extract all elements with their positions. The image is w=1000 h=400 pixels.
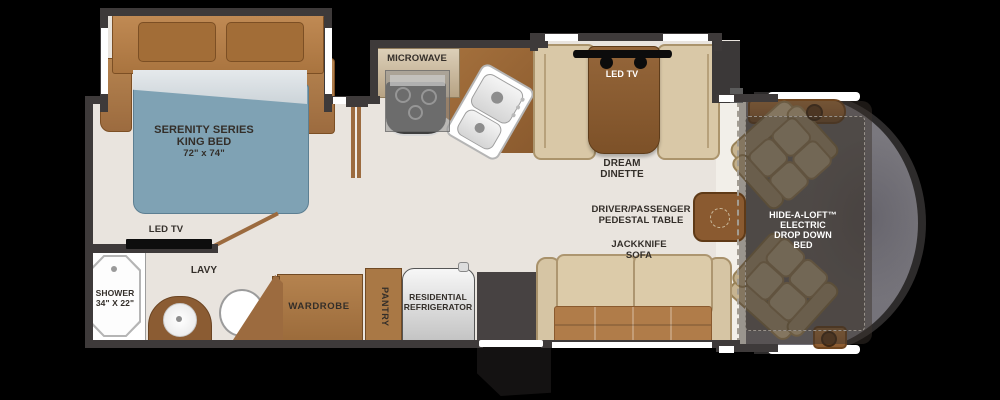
bench-crease xyxy=(544,54,546,148)
wall-dinette-slideout-right xyxy=(714,33,722,51)
dinette-tv-label: LED TV xyxy=(592,69,652,79)
pedestal-table-label: DRIVER/PASSENGER PEDESTAL TABLE xyxy=(571,205,711,226)
dinette-table xyxy=(588,46,660,154)
sofa-text-2: SOFA xyxy=(579,251,699,262)
loft-text-2: ELECTRIC xyxy=(741,220,865,230)
wall-bottom-left xyxy=(85,340,483,348)
sofa-label: JACKKNIFE SOFA xyxy=(579,240,699,261)
slide-front-dashed-line xyxy=(737,101,739,344)
microwave-label: MICROWAVE xyxy=(377,54,457,65)
bedroom-tv-label: LED TV xyxy=(133,225,199,236)
hide-a-loft-label: HIDE-A-LOFT™ ELECTRIC DROP DOWN BED xyxy=(741,210,865,250)
window-cab-bottom xyxy=(719,346,734,353)
dinette-text-2: DINETTE xyxy=(582,169,662,180)
shower-drain xyxy=(111,266,117,272)
dinette-bench-left xyxy=(533,44,596,160)
bed-dims-text: 72" x 74" xyxy=(124,149,284,160)
dinette-tv-arm xyxy=(573,50,672,58)
headboard-panel xyxy=(226,22,304,62)
shower-label: SHOWER 34" X 22" xyxy=(85,289,145,308)
pantry-label: PANTRY xyxy=(374,276,390,338)
refrigerator-text-2: REFRIGERATOR xyxy=(398,303,478,313)
loft-text-3: DROP DOWN xyxy=(741,230,865,240)
bed-series-text: SERENITY SERIES xyxy=(124,124,284,136)
headboard-panel xyxy=(138,22,216,62)
dinette-text-1: DREAM xyxy=(582,158,662,169)
window-cab-top xyxy=(719,95,734,102)
wall-left xyxy=(85,96,93,348)
loft-text-4: BED xyxy=(741,240,865,250)
bed-type-text: KING BED xyxy=(124,136,284,148)
dinette-bench-right xyxy=(657,44,720,160)
bedroom-tv xyxy=(126,239,212,249)
kitchen-door xyxy=(351,104,361,178)
window-bed-slideout-left xyxy=(101,28,108,94)
refrigerator-label: RESIDENTIAL REFRIGERATOR xyxy=(398,293,478,312)
refrigerator-cap xyxy=(458,262,469,272)
rv-floorplan: SERENITY SERIES KING BED 72" x 74" LED T… xyxy=(0,0,1000,400)
window-bedroom-top xyxy=(333,97,346,104)
wardrobe-label: WARDROBE xyxy=(279,302,359,313)
sofa-seat xyxy=(554,306,712,344)
pedestal-text-2: PEDESTAL TABLE xyxy=(571,216,711,227)
window-dinette-2 xyxy=(663,34,708,41)
wall-bed-slideout-top xyxy=(100,8,332,16)
dinette-tv-mount xyxy=(600,56,613,69)
loft-text-1: HIDE-A-LOFT™ xyxy=(741,210,865,220)
wall-kitchen-top xyxy=(370,40,548,48)
entry-steps xyxy=(477,342,551,396)
entry-threshold xyxy=(479,340,543,347)
pedestal-table-base xyxy=(710,208,730,228)
wall-kitchen-step xyxy=(370,40,378,104)
lavy-label: LAVY xyxy=(174,265,234,276)
shower-dims-text: 34" X 22" xyxy=(85,299,145,309)
dinette-tv-mount xyxy=(634,56,647,69)
wall-door-stub xyxy=(346,96,368,107)
window-sofa-rear xyxy=(552,342,712,348)
window-dinette-1 xyxy=(545,34,578,41)
window-bed-slideout-right xyxy=(325,28,332,94)
bed-label: SERENITY SERIES KING BED 72" x 74" xyxy=(124,124,284,159)
vanity-sink-drain xyxy=(176,316,182,322)
wall-dinette-slideout-left xyxy=(530,33,538,51)
bench-crease xyxy=(707,54,709,148)
microwave-overhead xyxy=(385,70,450,132)
microwave-door xyxy=(390,75,445,86)
dinette-label: DREAM DINETTE xyxy=(582,158,662,180)
